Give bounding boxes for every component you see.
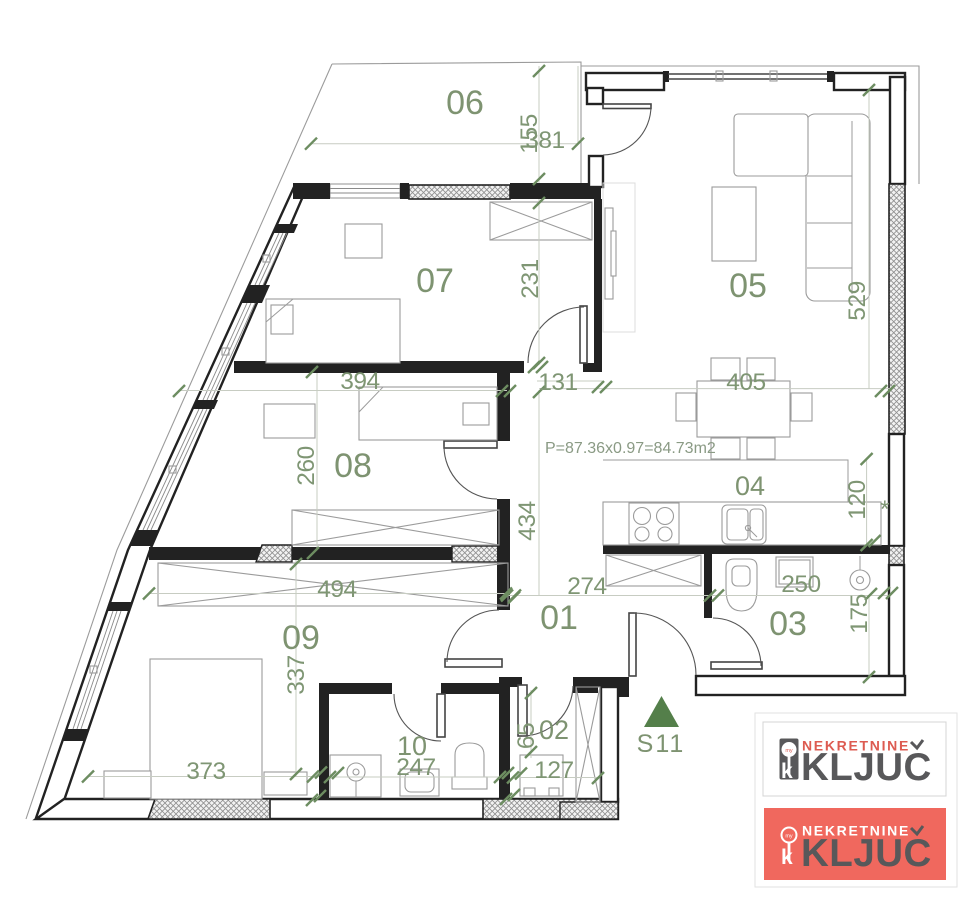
svg-text:260: 260: [293, 446, 320, 485]
svg-text:03: 03: [769, 605, 807, 643]
svg-text:155: 155: [516, 114, 543, 153]
svg-text:KLJUC: KLJUC: [801, 832, 932, 875]
svg-text:131: 131: [538, 369, 577, 396]
svg-text:k: k: [781, 846, 793, 869]
svg-text:KLJUC: KLJUC: [801, 746, 932, 789]
svg-text:529: 529: [844, 281, 871, 320]
svg-text:09: 09: [282, 619, 320, 657]
svg-text:06: 06: [446, 84, 484, 122]
svg-text:01: 01: [540, 599, 578, 637]
svg-text:120: 120: [844, 480, 871, 519]
svg-text:*: *: [880, 496, 890, 523]
svg-text:k: k: [781, 760, 793, 783]
svg-text:231: 231: [517, 259, 544, 298]
svg-text:274: 274: [567, 573, 606, 600]
svg-text:127: 127: [534, 757, 573, 784]
svg-text:494: 494: [317, 576, 356, 603]
svg-text:405: 405: [726, 369, 765, 396]
svg-text:02: 02: [539, 715, 569, 745]
svg-text:05: 05: [729, 267, 767, 305]
svg-text:434: 434: [514, 501, 541, 540]
svg-text:65: 65: [513, 723, 540, 749]
svg-text:10: 10: [397, 731, 427, 761]
svg-text:394: 394: [340, 368, 379, 395]
svg-text:07: 07: [416, 262, 454, 300]
svg-text:P=87.36x0.97=84.73m2: P=87.36x0.97=84.73m2: [545, 440, 716, 457]
svg-text:250: 250: [781, 571, 820, 598]
svg-text:175: 175: [846, 594, 873, 633]
svg-text:373: 373: [186, 758, 225, 785]
svg-text:my: my: [785, 748, 793, 754]
svg-text:my: my: [785, 834, 793, 840]
svg-text:337: 337: [283, 655, 310, 694]
svg-text:S11: S11: [637, 730, 686, 758]
svg-text:04: 04: [735, 471, 765, 501]
svg-text:08: 08: [334, 447, 372, 485]
